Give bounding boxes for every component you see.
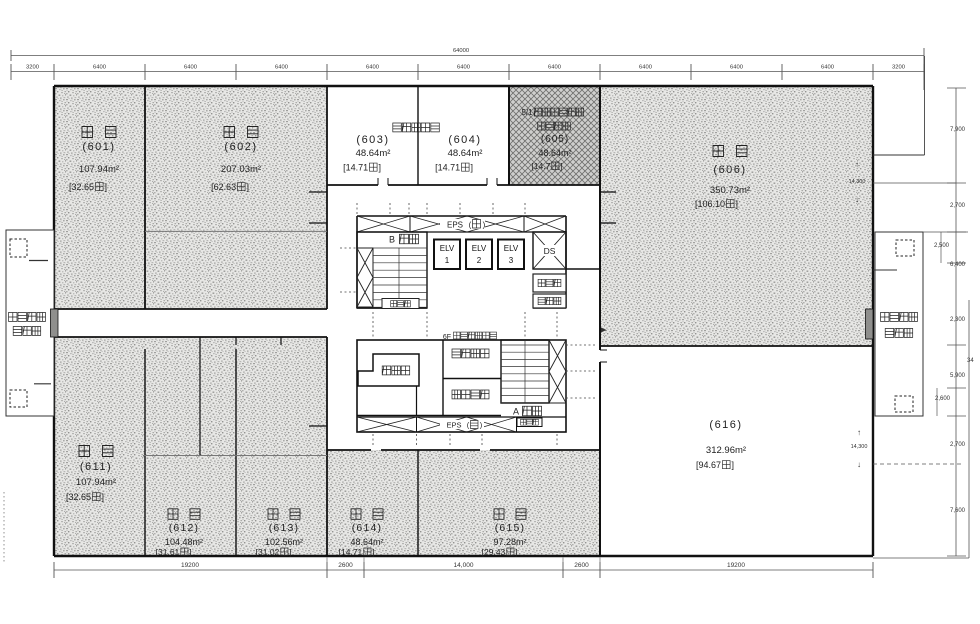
svg-text:19200: 19200 <box>727 562 745 569</box>
svg-text:2: 2 <box>477 256 482 265</box>
svg-text:1: 1 <box>445 256 450 265</box>
svg-text:2,700: 2,700 <box>950 442 966 448</box>
svg-text:): ) <box>483 221 486 230</box>
svg-text:]: ] <box>105 182 108 192</box>
svg-text:(601): (601) <box>82 141 115 153</box>
svg-text:[62.63: [62.63 <box>211 182 236 192</box>
svg-text:48.64m²: 48.64m² <box>350 537 383 547</box>
svg-text:]: ] <box>736 199 739 209</box>
svg-text:ELV: ELV <box>504 244 519 253</box>
svg-text:]: ] <box>289 547 291 557</box>
svg-text:6400: 6400 <box>730 65 743 71</box>
svg-text:]: ] <box>189 547 191 557</box>
svg-text:5,900: 5,900 <box>950 373 966 379</box>
svg-text:312.96m²: 312.96m² <box>706 445 746 456</box>
svg-text:7,600: 7,600 <box>950 508 966 514</box>
svg-text:6400: 6400 <box>821 65 834 71</box>
svg-text:3200: 3200 <box>26 65 39 71</box>
svg-text:2,300: 2,300 <box>950 317 966 323</box>
svg-text:6,400: 6,400 <box>950 262 966 268</box>
svg-text:3: 3 <box>509 256 514 265</box>
svg-text:[29.43: [29.43 <box>482 547 506 557</box>
svg-text:↑: ↑ <box>855 160 859 169</box>
svg-text:14,300: 14,300 <box>851 444 868 450</box>
svg-text:EPS: EPS <box>446 421 461 430</box>
svg-text:]: ] <box>102 492 105 502</box>
svg-text:(611): (611) <box>80 461 112 473</box>
svg-text:48.64m²: 48.64m² <box>448 148 483 159</box>
svg-text:↓: ↓ <box>855 195 859 204</box>
svg-text:(602): (602) <box>224 141 257 153</box>
svg-text:2600: 2600 <box>574 562 589 569</box>
svg-text:[94.67: [94.67 <box>696 460 721 470</box>
svg-text:]: ] <box>372 547 374 557</box>
svg-text:↓: ↓ <box>857 460 861 469</box>
svg-text:(616): (616) <box>709 419 742 431</box>
svg-text:[31.61: [31.61 <box>156 547 180 557</box>
svg-text:ELV: ELV <box>440 244 455 253</box>
svg-text:102.56m²: 102.56m² <box>265 537 303 547</box>
svg-text:6400: 6400 <box>548 65 561 71</box>
svg-text:[32.65: [32.65 <box>69 182 94 192</box>
svg-text:[14.71: [14.71 <box>343 163 368 173</box>
svg-text:]: ] <box>379 163 382 173</box>
svg-text:97.28m²: 97.28m² <box>493 537 526 547</box>
svg-text:14,000: 14,000 <box>454 562 474 569</box>
svg-text:3200: 3200 <box>892 65 905 71</box>
svg-text:(605): (605) <box>541 134 569 145</box>
svg-text:(606): (606) <box>713 164 746 176</box>
svg-text:(603): (603) <box>356 134 389 146</box>
svg-text:↑: ↑ <box>857 428 861 437</box>
svg-text:[14.71: [14.71 <box>339 547 363 557</box>
svg-text:6400: 6400 <box>457 65 470 71</box>
svg-text:19200: 19200 <box>181 562 199 569</box>
svg-text:ELV: ELV <box>472 244 487 253</box>
svg-text:]: ] <box>515 547 517 557</box>
svg-text:6400: 6400 <box>275 65 288 71</box>
svg-text:(613): (613) <box>269 522 300 534</box>
svg-text:[14.7: [14.7 <box>531 161 550 171</box>
svg-text:[32.65: [32.65 <box>66 492 91 502</box>
svg-text:]: ] <box>247 182 250 192</box>
svg-text:350.73m²: 350.73m² <box>710 185 750 196</box>
svg-text:EPS: EPS <box>447 221 463 230</box>
svg-text:6400: 6400 <box>639 65 652 71</box>
svg-text:2,500: 2,500 <box>934 243 950 249</box>
svg-text:107.94m²: 107.94m² <box>76 477 116 488</box>
svg-text:104.48m²: 104.48m² <box>165 537 203 547</box>
svg-text:(604): (604) <box>448 134 481 146</box>
svg-text:DS: DS <box>544 246 556 256</box>
svg-text:B: B <box>389 235 395 245</box>
svg-text:5/1: 5/1 <box>521 108 533 117</box>
svg-text:(612): (612) <box>169 522 200 534</box>
svg-text:A: A <box>513 407 519 417</box>
svg-text:[106.10: [106.10 <box>695 199 725 209</box>
svg-text:2600: 2600 <box>338 562 353 569</box>
svg-text:2,700: 2,700 <box>950 203 966 209</box>
svg-text:]: ] <box>471 163 474 173</box>
svg-text:[14.71: [14.71 <box>435 163 460 173</box>
svg-text:(614): (614) <box>352 522 383 534</box>
svg-text:107.94m²: 107.94m² <box>79 164 119 175</box>
svg-text:6400: 6400 <box>184 65 197 71</box>
svg-text:(: ( <box>469 221 472 230</box>
svg-text:7,900: 7,900 <box>950 127 966 133</box>
svg-text:34: 34 <box>967 358 974 364</box>
svg-text:]: ] <box>560 161 562 171</box>
svg-text:(615): (615) <box>495 522 526 534</box>
svg-text:207.03m²: 207.03m² <box>221 164 261 175</box>
svg-text:[31.02: [31.02 <box>256 547 280 557</box>
svg-text:48.64m²: 48.64m² <box>356 148 391 159</box>
svg-text:]: ] <box>732 460 735 470</box>
svg-text:6400: 6400 <box>93 65 106 71</box>
svg-text:64000: 64000 <box>453 48 469 54</box>
svg-text:6400: 6400 <box>366 65 379 71</box>
svg-text:14,300: 14,300 <box>849 179 866 185</box>
svg-text:48.64m²: 48.64m² <box>538 148 571 158</box>
